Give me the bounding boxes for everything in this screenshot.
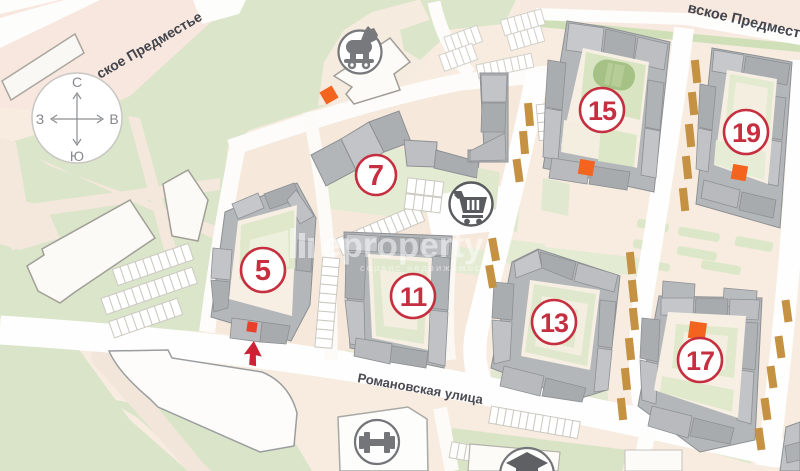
svg-text:15: 15 <box>588 96 617 126</box>
svg-text:С: С <box>72 74 82 90</box>
svg-text:11: 11 <box>400 282 428 312</box>
svg-text:7: 7 <box>368 160 384 192</box>
svg-text:З: З <box>36 111 44 127</box>
svg-text:17: 17 <box>686 346 714 376</box>
svg-text:19: 19 <box>732 118 761 148</box>
svg-text:13: 13 <box>540 308 569 338</box>
svg-text:Ю: Ю <box>70 148 84 164</box>
svg-text:сервис недвижимости: сервис недвижимости <box>360 263 495 274</box>
svg-text:В: В <box>109 111 118 127</box>
svg-text:eproperty: eproperty <box>322 226 484 265</box>
svg-text:5: 5 <box>255 255 271 287</box>
